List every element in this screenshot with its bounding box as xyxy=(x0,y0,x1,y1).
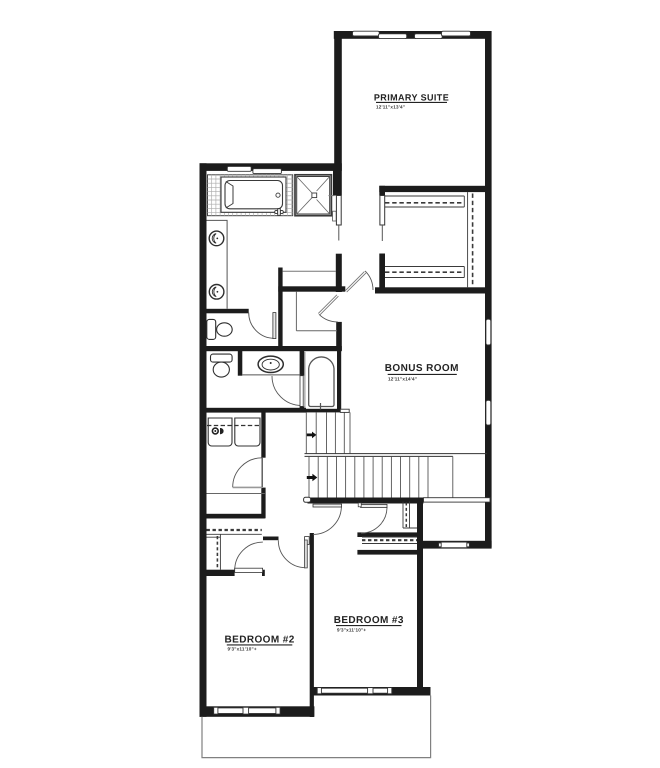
svg-text:BEDROOM #3: BEDROOM #3 xyxy=(334,615,404,626)
svg-text:PRIMARY SUITE: PRIMARY SUITE xyxy=(374,92,449,102)
svg-text:BONUS ROOM: BONUS ROOM xyxy=(385,363,459,374)
svg-text:BEDROOM #2: BEDROOM #2 xyxy=(225,635,295,646)
svg-text:9'3"x11'10"+: 9'3"x11'10"+ xyxy=(337,627,366,632)
svg-text:12'11"x14'4": 12'11"x14'4" xyxy=(388,376,417,381)
svg-text:12'11"x13'4": 12'11"x13'4" xyxy=(376,105,405,110)
svg-text:9'3"x11'10"+: 9'3"x11'10"+ xyxy=(228,647,257,652)
